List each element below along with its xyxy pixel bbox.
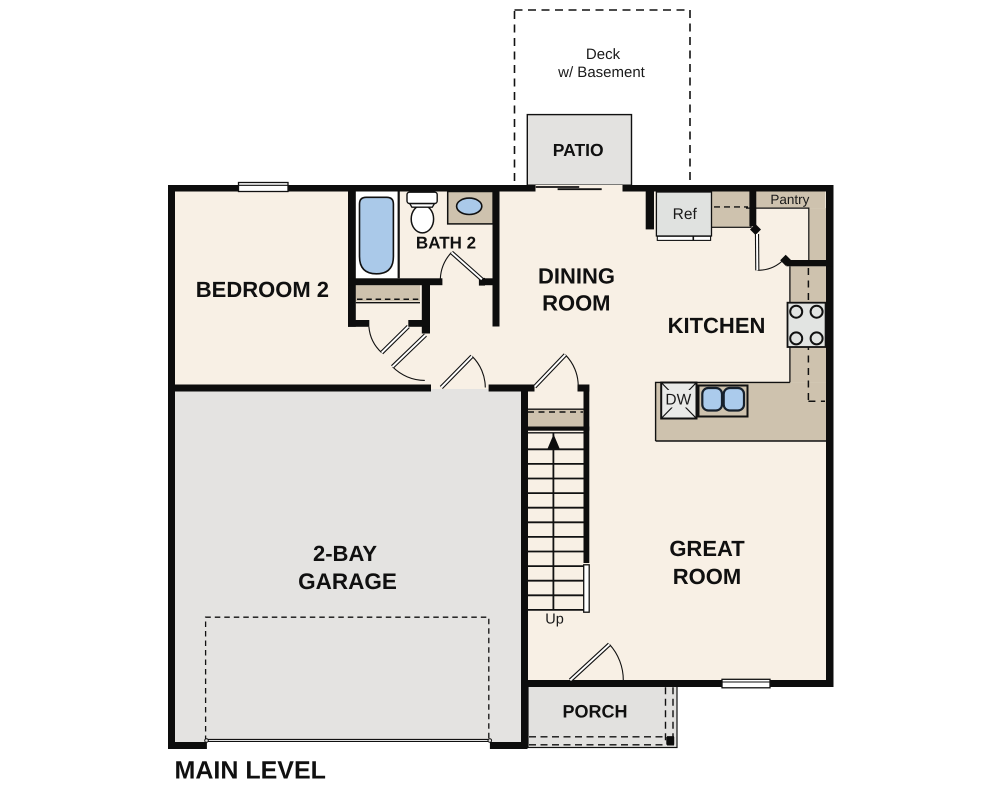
svg-text:Up: Up bbox=[545, 611, 564, 627]
svg-text:PORCH: PORCH bbox=[562, 702, 627, 722]
svg-text:BEDROOM 2: BEDROOM 2 bbox=[196, 277, 329, 302]
svg-text:PATIO: PATIO bbox=[553, 140, 604, 160]
svg-text:ROOM: ROOM bbox=[673, 564, 741, 589]
svg-text:ROOM: ROOM bbox=[542, 291, 610, 316]
svg-text:w/ Basement: w/ Basement bbox=[557, 64, 646, 81]
svg-text:Pantry: Pantry bbox=[770, 192, 809, 207]
svg-text:2-BAY: 2-BAY bbox=[313, 541, 377, 566]
svg-text:KITCHEN: KITCHEN bbox=[668, 313, 766, 338]
svg-text:BATH 2: BATH 2 bbox=[416, 234, 476, 253]
svg-text:DW: DW bbox=[665, 391, 691, 408]
svg-text:GARAGE: GARAGE bbox=[298, 569, 397, 594]
svg-text:MAIN LEVEL: MAIN LEVEL bbox=[175, 757, 326, 785]
svg-text:Deck: Deck bbox=[586, 46, 621, 63]
svg-text:DINING: DINING bbox=[538, 264, 615, 289]
svg-text:Ref: Ref bbox=[673, 206, 698, 223]
svg-text:GREAT: GREAT bbox=[669, 536, 745, 561]
